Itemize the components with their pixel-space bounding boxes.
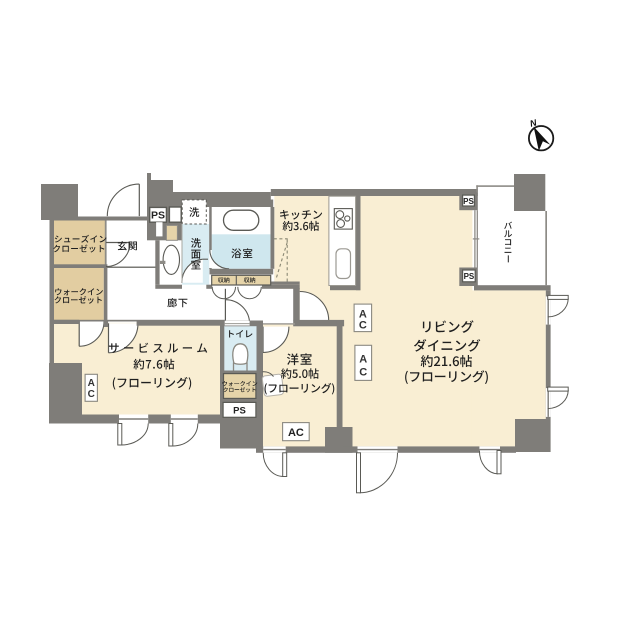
svg-text:A: A — [359, 354, 367, 366]
svg-text:PS: PS — [464, 272, 475, 281]
svg-text:AC: AC — [288, 427, 304, 439]
svg-text:A: A — [88, 378, 95, 389]
svg-text:C: C — [359, 319, 367, 331]
svg-text:PS: PS — [463, 197, 474, 206]
svg-text:PS: PS — [151, 210, 165, 222]
svg-text:C: C — [88, 389, 95, 400]
svg-text:C: C — [359, 366, 367, 378]
svg-text:PS: PS — [233, 405, 246, 416]
